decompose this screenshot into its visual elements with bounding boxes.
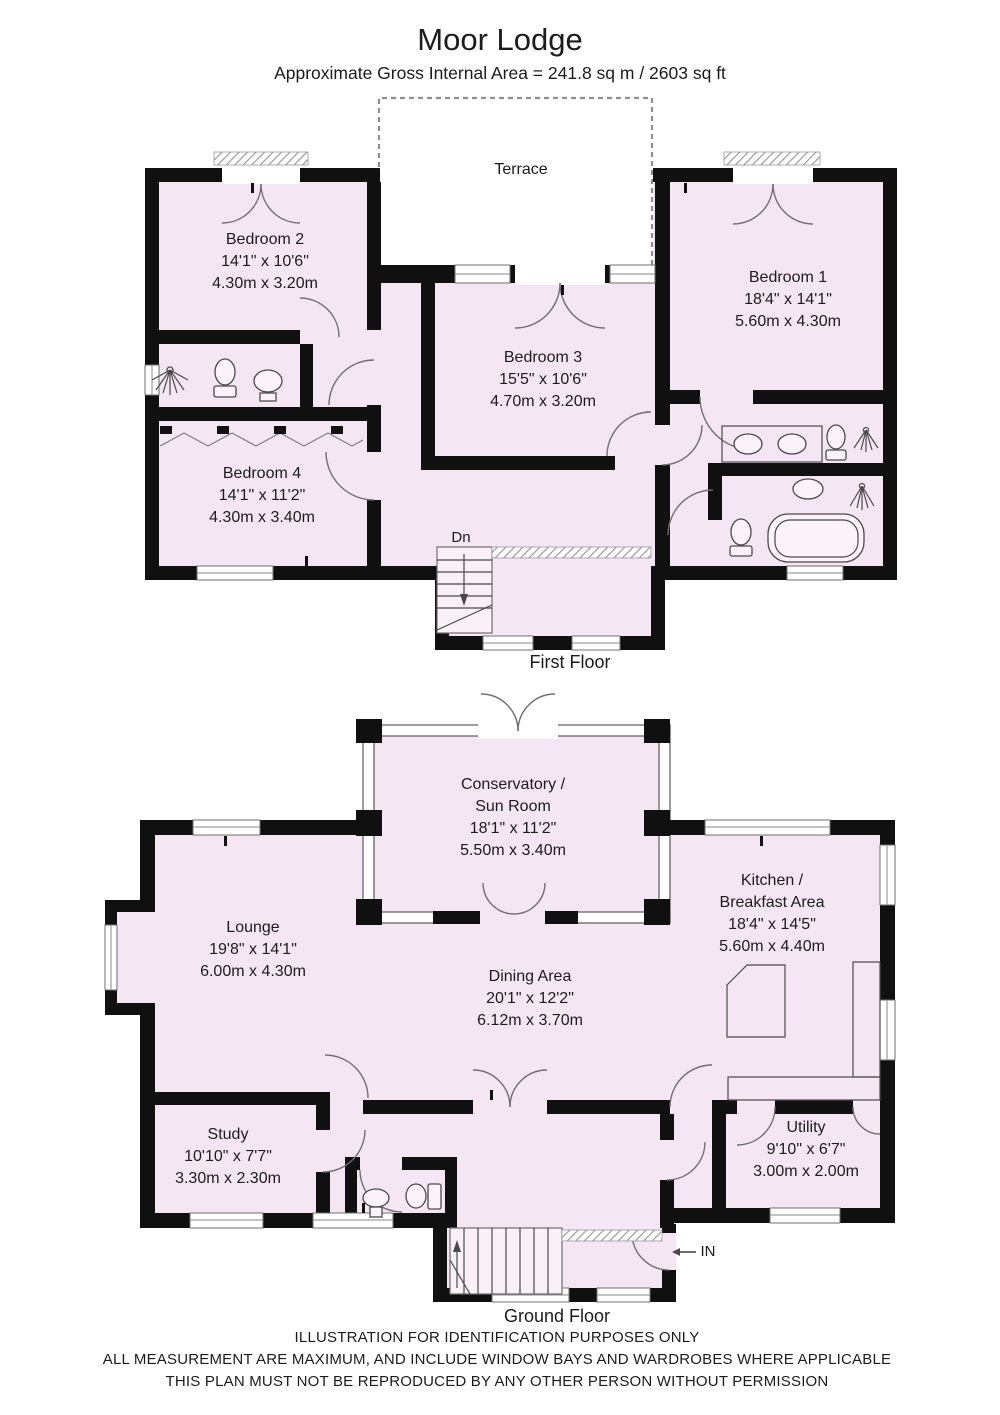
- bathtub-icon: [768, 514, 864, 562]
- room-label-bedroom2: Bedroom 2 14'1" x 10'6" 4.30m x 3.20m: [212, 229, 318, 295]
- room-label-bedroom3: Bedroom 3 15'5" x 10'6" 4.70m x 3.20m: [490, 347, 596, 413]
- basin-icon: [778, 434, 806, 454]
- toilet-icon: [730, 519, 752, 556]
- room-label-conservatory: Conservatory / Sun Room 18'1" x 11'2" 5.…: [460, 774, 566, 862]
- basin-icon: [734, 434, 762, 454]
- toilet-icon: [826, 425, 846, 460]
- basin-icon: [793, 479, 823, 499]
- first-floor-caption: First Floor: [530, 651, 611, 673]
- room-label-terrace: Terrace: [494, 159, 547, 181]
- toilet-icon: [214, 359, 236, 397]
- room-label-utility: Utility 9'10" x 6'7" 3.00m x 2.00m: [753, 1117, 859, 1183]
- room-label-bedroom4: Bedroom 4 14'1" x 11'2" 4.30m x 3.40m: [209, 463, 315, 529]
- room-label-lounge: Lounge 19'8" x 14'1" 6.00m x 4.30m: [200, 917, 306, 983]
- footer-line-2: ALL MEASUREMENT ARE MAXIMUM, AND INCLUDE…: [103, 1349, 891, 1371]
- stairs-down-label: Dn: [451, 527, 470, 549]
- room-label-bedroom1: Bedroom 1 18'4" x 14'1" 5.60m x 4.30m: [735, 267, 841, 333]
- ground-floor-caption: Ground Floor: [504, 1305, 610, 1327]
- footer-line-3: THIS PLAN MUST NOT BE REPRODUCED BY ANY …: [166, 1371, 829, 1393]
- room-label-study: Study 10'10" x 7'7" 3.30m x 2.30m: [175, 1124, 281, 1190]
- floorplan-page: Moor Lodge Approximate Gross Internal Ar…: [0, 0, 1000, 1415]
- page-title: Moor Lodge: [417, 23, 582, 57]
- room-label-dining: Dining Area 20'1" x 12'2" 6.12m x 3.70m: [477, 966, 583, 1032]
- floorplan-drawing: [0, 0, 1000, 1415]
- entrance-label: IN: [701, 1241, 716, 1263]
- page-subtitle: Approximate Gross Internal Area = 241.8 …: [274, 62, 726, 84]
- room-label-kitchen: Kitchen / Breakfast Area 18'4" x 14'5" 5…: [719, 870, 825, 958]
- footer-line-1: ILLUSTRATION FOR IDENTIFICATION PURPOSES…: [295, 1327, 700, 1349]
